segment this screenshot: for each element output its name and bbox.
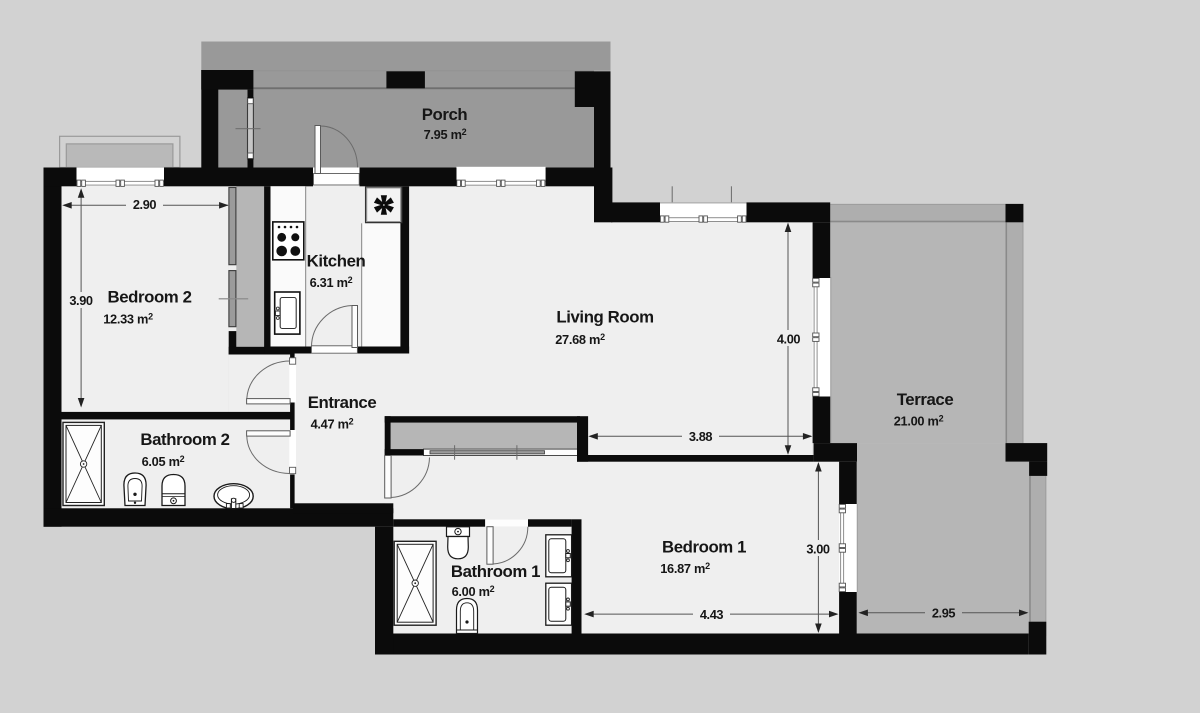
svg-text:6.31 m2: 6.31 m2	[310, 275, 353, 290]
svg-text:21.00 m2: 21.00 m2	[894, 414, 944, 429]
svg-text:Bedroom 2: Bedroom 2	[107, 288, 191, 307]
svg-text:6.00 m2: 6.00 m2	[452, 584, 495, 599]
svg-text:4.43: 4.43	[700, 607, 724, 622]
svg-text:16.87 m2: 16.87 m2	[660, 561, 710, 576]
svg-text:6.05 m2: 6.05 m2	[142, 454, 185, 469]
svg-text:Terrace: Terrace	[897, 390, 954, 409]
svg-text:27.68 m2: 27.68 m2	[555, 332, 605, 347]
svg-text:7.95 m2: 7.95 m2	[424, 127, 467, 142]
svg-text:3.00: 3.00	[806, 542, 830, 557]
svg-text:4.00: 4.00	[777, 332, 801, 347]
svg-text:Living Room: Living Room	[556, 308, 653, 327]
svg-text:2.90: 2.90	[133, 197, 157, 212]
svg-text:Bathroom 1: Bathroom 1	[451, 562, 540, 581]
svg-text:Bathroom 2: Bathroom 2	[140, 430, 229, 449]
svg-text:Kitchen: Kitchen	[307, 252, 366, 271]
svg-text:3.88: 3.88	[689, 429, 713, 444]
svg-text:Porch: Porch	[422, 105, 468, 124]
svg-text:Entrance: Entrance	[308, 393, 377, 412]
svg-text:Bedroom 1: Bedroom 1	[662, 538, 746, 557]
svg-text:3.90: 3.90	[69, 293, 93, 308]
svg-text:12.33 m2: 12.33 m2	[103, 312, 153, 327]
svg-text:4.47 m2: 4.47 m2	[311, 417, 354, 432]
svg-text:2.95: 2.95	[932, 606, 956, 621]
